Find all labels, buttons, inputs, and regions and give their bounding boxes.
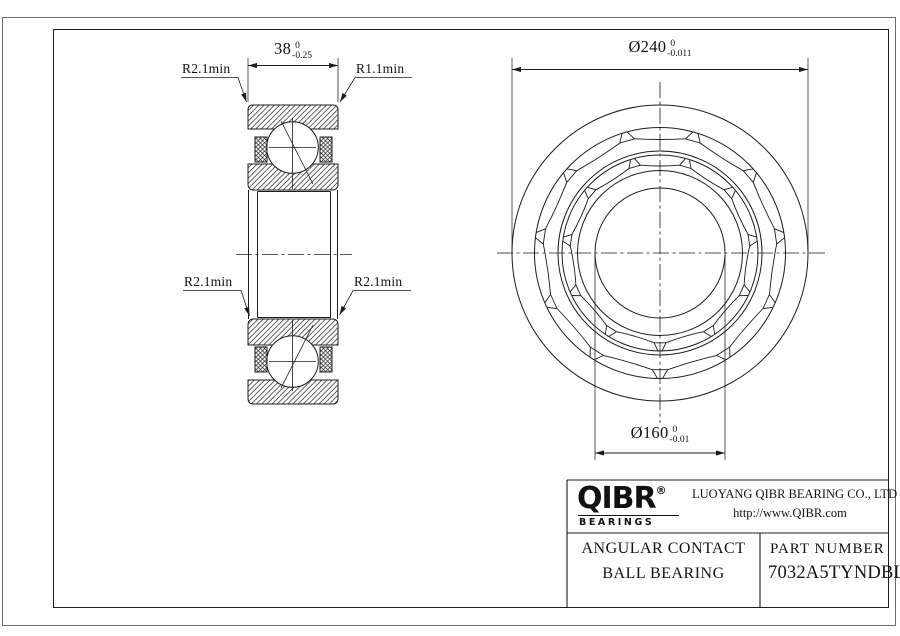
drawing-sheet: 38 0 -0.25 Ø240 0 -0.011 Ø160 0 -0.01 R2… (0, 0, 900, 636)
bore-dimension-text: Ø160 0 -0.01 (590, 425, 730, 446)
cage-bottom-right (320, 347, 332, 372)
dim-value: 38 (274, 41, 291, 58)
company-name: LUOYANG QIBR BEARING CO., LTD (692, 487, 888, 502)
width-dimension-text: 38 0 -0.25 (233, 41, 353, 62)
bearing-drawing-canvas (0, 0, 900, 636)
width-dimension-lines (248, 58, 338, 102)
dim-tolerance: 0 -0.01 (670, 425, 690, 446)
dim-tolerance: 0 -0.011 (667, 39, 691, 60)
front-view (497, 58, 828, 460)
radius-label-mid-left: R2.1min (184, 275, 232, 289)
company-website: http://www.QIBR.com (692, 506, 888, 521)
section-view (181, 58, 412, 404)
dim-value: Ø160 (631, 425, 669, 442)
dim-tolerance: 0 -0.25 (292, 41, 312, 62)
radius-label-top-left: R2.1min (182, 62, 230, 76)
cage-bottom-left (255, 347, 267, 372)
logo-subtitle: BEARINGS (579, 517, 689, 528)
part-number-label: PART NUMBER (770, 541, 885, 558)
product-type-line2: BALL BEARING (568, 565, 759, 583)
radius-label-top-right: R1.1min (356, 62, 404, 76)
company-logo: QIBR® BEARINGS (577, 484, 689, 528)
front-view-centerlines (497, 82, 828, 423)
cage-top-right (320, 137, 332, 162)
dim-value: Ø240 (628, 39, 666, 56)
radius-label-mid-right: R2.1min (354, 275, 402, 289)
part-number-value: 7032A5TYNDBLP4 (768, 563, 900, 584)
product-type-line1: ANGULAR CONTACT (568, 540, 759, 558)
cage-top-left (255, 137, 267, 162)
logo-wordmark: QIBR® (577, 481, 667, 516)
registered-trademark-icon: ® (656, 484, 667, 497)
od-dimension-text: Ø240 0 -0.011 (590, 39, 730, 60)
